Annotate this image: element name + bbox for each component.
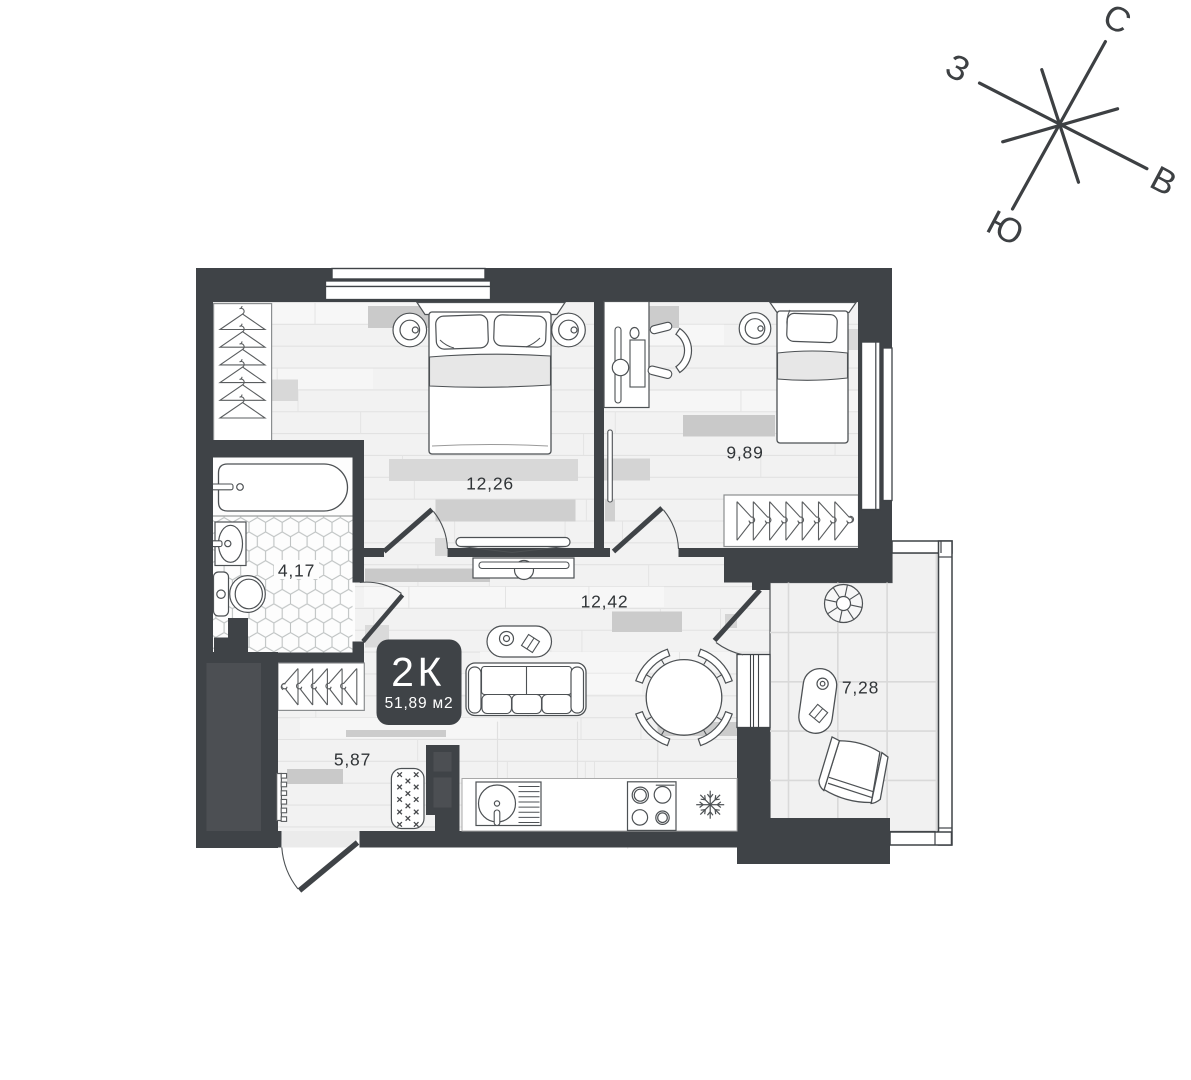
svg-text:12,42: 12,42: [581, 592, 629, 612]
svg-text:9,89: 9,89: [726, 443, 763, 463]
svg-text:2К: 2К: [391, 649, 445, 695]
svg-text:12,26: 12,26: [466, 474, 514, 494]
svg-text:51,89 м2: 51,89 м2: [385, 695, 454, 712]
svg-text:4,17: 4,17: [278, 561, 315, 581]
svg-text:5,87: 5,87: [334, 750, 371, 770]
svg-text:7,28: 7,28: [842, 678, 879, 698]
